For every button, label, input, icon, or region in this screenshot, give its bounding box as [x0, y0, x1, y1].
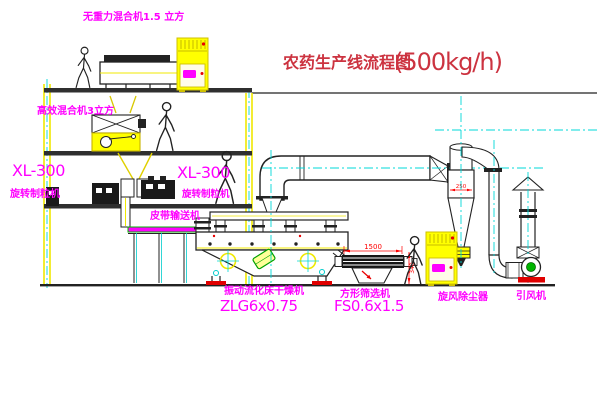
floor3-deck	[44, 204, 252, 209]
fan-inlet-duct	[506, 263, 523, 279]
granulator-right-unit	[141, 180, 175, 199]
belt-conveyor	[128, 227, 204, 283]
dryer-name-label: 振动流化床干燥机	[224, 284, 304, 297]
y-chute	[118, 153, 152, 179]
fan-base	[518, 277, 545, 283]
fan-motor	[527, 263, 536, 272]
sieve-stand	[352, 268, 392, 283]
diagram-canvas: 1500 340 250	[0, 0, 600, 403]
sieve-length-dimension: 1500	[344, 243, 402, 254]
granulator-left-model-label: XL-300	[12, 161, 65, 180]
belt	[128, 227, 198, 232]
granulator-right-model-label: XL-300	[177, 163, 230, 182]
exhaust-duct	[256, 156, 450, 200]
granulator-left-name-label: 旋转制粒机	[9, 187, 60, 200]
fan-label: 引风机	[516, 289, 546, 302]
person-floor2	[157, 103, 175, 151]
page-title: 农药生产线流程图	[282, 53, 411, 72]
high-efficiency-mixer	[92, 115, 146, 151]
hopper-left	[121, 179, 134, 197]
dryer-stubs	[214, 220, 337, 232]
floor2-mixer-label: 高效混合机3立方	[37, 104, 114, 117]
page-title-capacity: (500kg/h)	[394, 48, 502, 76]
mixer-lid	[104, 55, 170, 62]
downduct-flange	[484, 168, 502, 172]
top-deck	[44, 88, 252, 93]
control-cabinet-ground	[426, 232, 457, 286]
induced-draft-fan	[518, 258, 545, 283]
duct-elbow	[260, 156, 430, 200]
belt-conveyor-label: 皮带输送机	[149, 209, 200, 222]
process-flow-drawing: 1500 340 250	[0, 0, 600, 403]
person-top-floor	[76, 47, 91, 87]
mixer2-outlet	[138, 119, 146, 128]
granulator-right-name-label: 旋转制粒机	[181, 188, 230, 200]
exhaust-funnel	[262, 198, 282, 212]
control-cabinet-top	[177, 38, 208, 92]
sieve-model-label: FS0.6x1.5	[334, 297, 404, 315]
floor2-deck	[44, 151, 252, 156]
dryer-body	[196, 232, 348, 250]
gravity-free-mixer	[100, 55, 188, 88]
granulator-left-unit	[92, 183, 119, 204]
cyclone-label: 旋风除尘器	[437, 290, 489, 303]
dryer-model-label: ZLG6x0.75	[220, 297, 298, 315]
dim-1500: 1500	[364, 243, 382, 251]
top-mixer-label: 无重力混合机1.5 立方	[82, 10, 184, 23]
